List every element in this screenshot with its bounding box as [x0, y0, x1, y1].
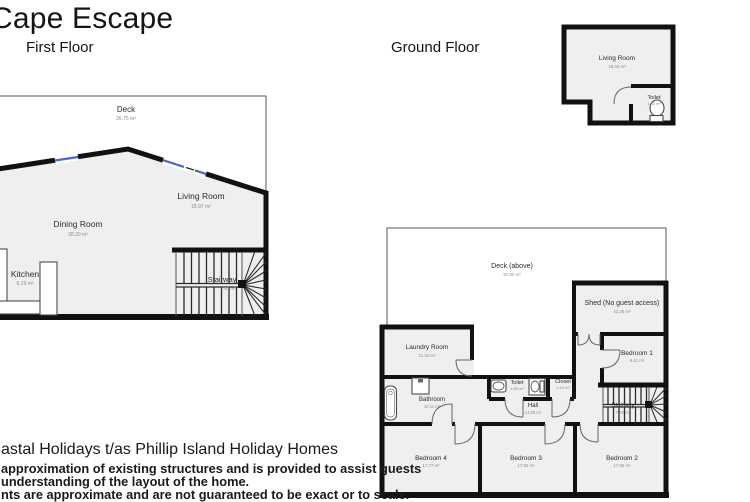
- area-label-living-room: 18.97 m²: [191, 204, 211, 210]
- room-label-living-room: Living Room: [177, 191, 224, 201]
- room-label-bedroom-3: Bedroom 3: [510, 455, 542, 462]
- area-label-annex-living: 18.46 m²: [608, 64, 626, 69]
- room-label-stairway-first: Stairway: [208, 275, 237, 284]
- area-label-stairway-first: 4.50 m²: [220, 286, 236, 291]
- area-label-shed: 42.26 m²: [613, 309, 631, 314]
- area-label-deck-above: 97.92 m²: [503, 272, 521, 277]
- area-label-bedroom-4: 17.77 m²: [423, 463, 441, 468]
- shower-icon: [412, 378, 429, 394]
- area-label-closet: 1.44 m²: [556, 385, 570, 390]
- toilet-icon: [529, 379, 545, 396]
- footer-company-line: astal Holidays t/as Phillip Island Holid…: [1, 441, 338, 459]
- room-label-bathroom: Bathroom: [419, 397, 445, 403]
- bathtub-icon: [385, 386, 397, 420]
- area-label-bathroom: 10.11 m²: [424, 404, 441, 409]
- area-label-laundry: 11.34 m²: [419, 353, 436, 358]
- area-label-bedroom-1: 9.41 m²: [630, 358, 645, 363]
- ground-floor-plan: Deck (above) 97.92 m² Shed (No guest acc…: [380, 228, 669, 497]
- room-label-kitchen: Kitchen: [11, 269, 40, 279]
- room-label-stairway-ground: Stairway: [611, 403, 634, 409]
- room-label-bedroom-1: Bedroom 1: [621, 350, 653, 357]
- room-label-laundry: Laundry Room: [406, 344, 449, 351]
- sink-icon: [491, 380, 506, 392]
- room-label-deck: Deck: [117, 105, 136, 114]
- area-label-toilet: 1.89 m²: [510, 386, 524, 391]
- area-label-dining-room: 28.20 m²: [68, 232, 88, 238]
- room-label-dining-room: Dining Room: [53, 219, 102, 229]
- first-floor-plan: Deck 26.75 m² Living Room 18.97 m² Dinin…: [0, 96, 269, 317]
- area-label-hall: 14.00 m²: [525, 410, 542, 415]
- area-label-deck: 26.75 m²: [116, 116, 136, 122]
- area-label-kitchen: 6.19 m²: [17, 281, 34, 287]
- area-label-bedroom-2: 17.96 m²: [614, 463, 632, 468]
- room-label-bedroom-2: Bedroom 2: [606, 455, 638, 462]
- floor-plan-canvas: Deck 26.75 m² Living Room 18.97 m² Dinin…: [0, 0, 750, 500]
- room-label-deck-above: Deck (above): [491, 263, 533, 270]
- room-label-annex-living: Living Room: [599, 55, 635, 62]
- area-label-stairway-ground: 7.20 m²: [616, 410, 631, 415]
- area-label-annex-toilet: 1.80 m²: [647, 101, 661, 106]
- ground-floor-annex-plan: Living Room 18.46 m² Toilet 1.80 m²: [564, 27, 673, 123]
- room-label-hall: Hall: [528, 403, 538, 409]
- area-label-bedroom-3: 17.92 m²: [518, 463, 536, 468]
- room-label-shed: Shed (No guest access): [585, 300, 660, 307]
